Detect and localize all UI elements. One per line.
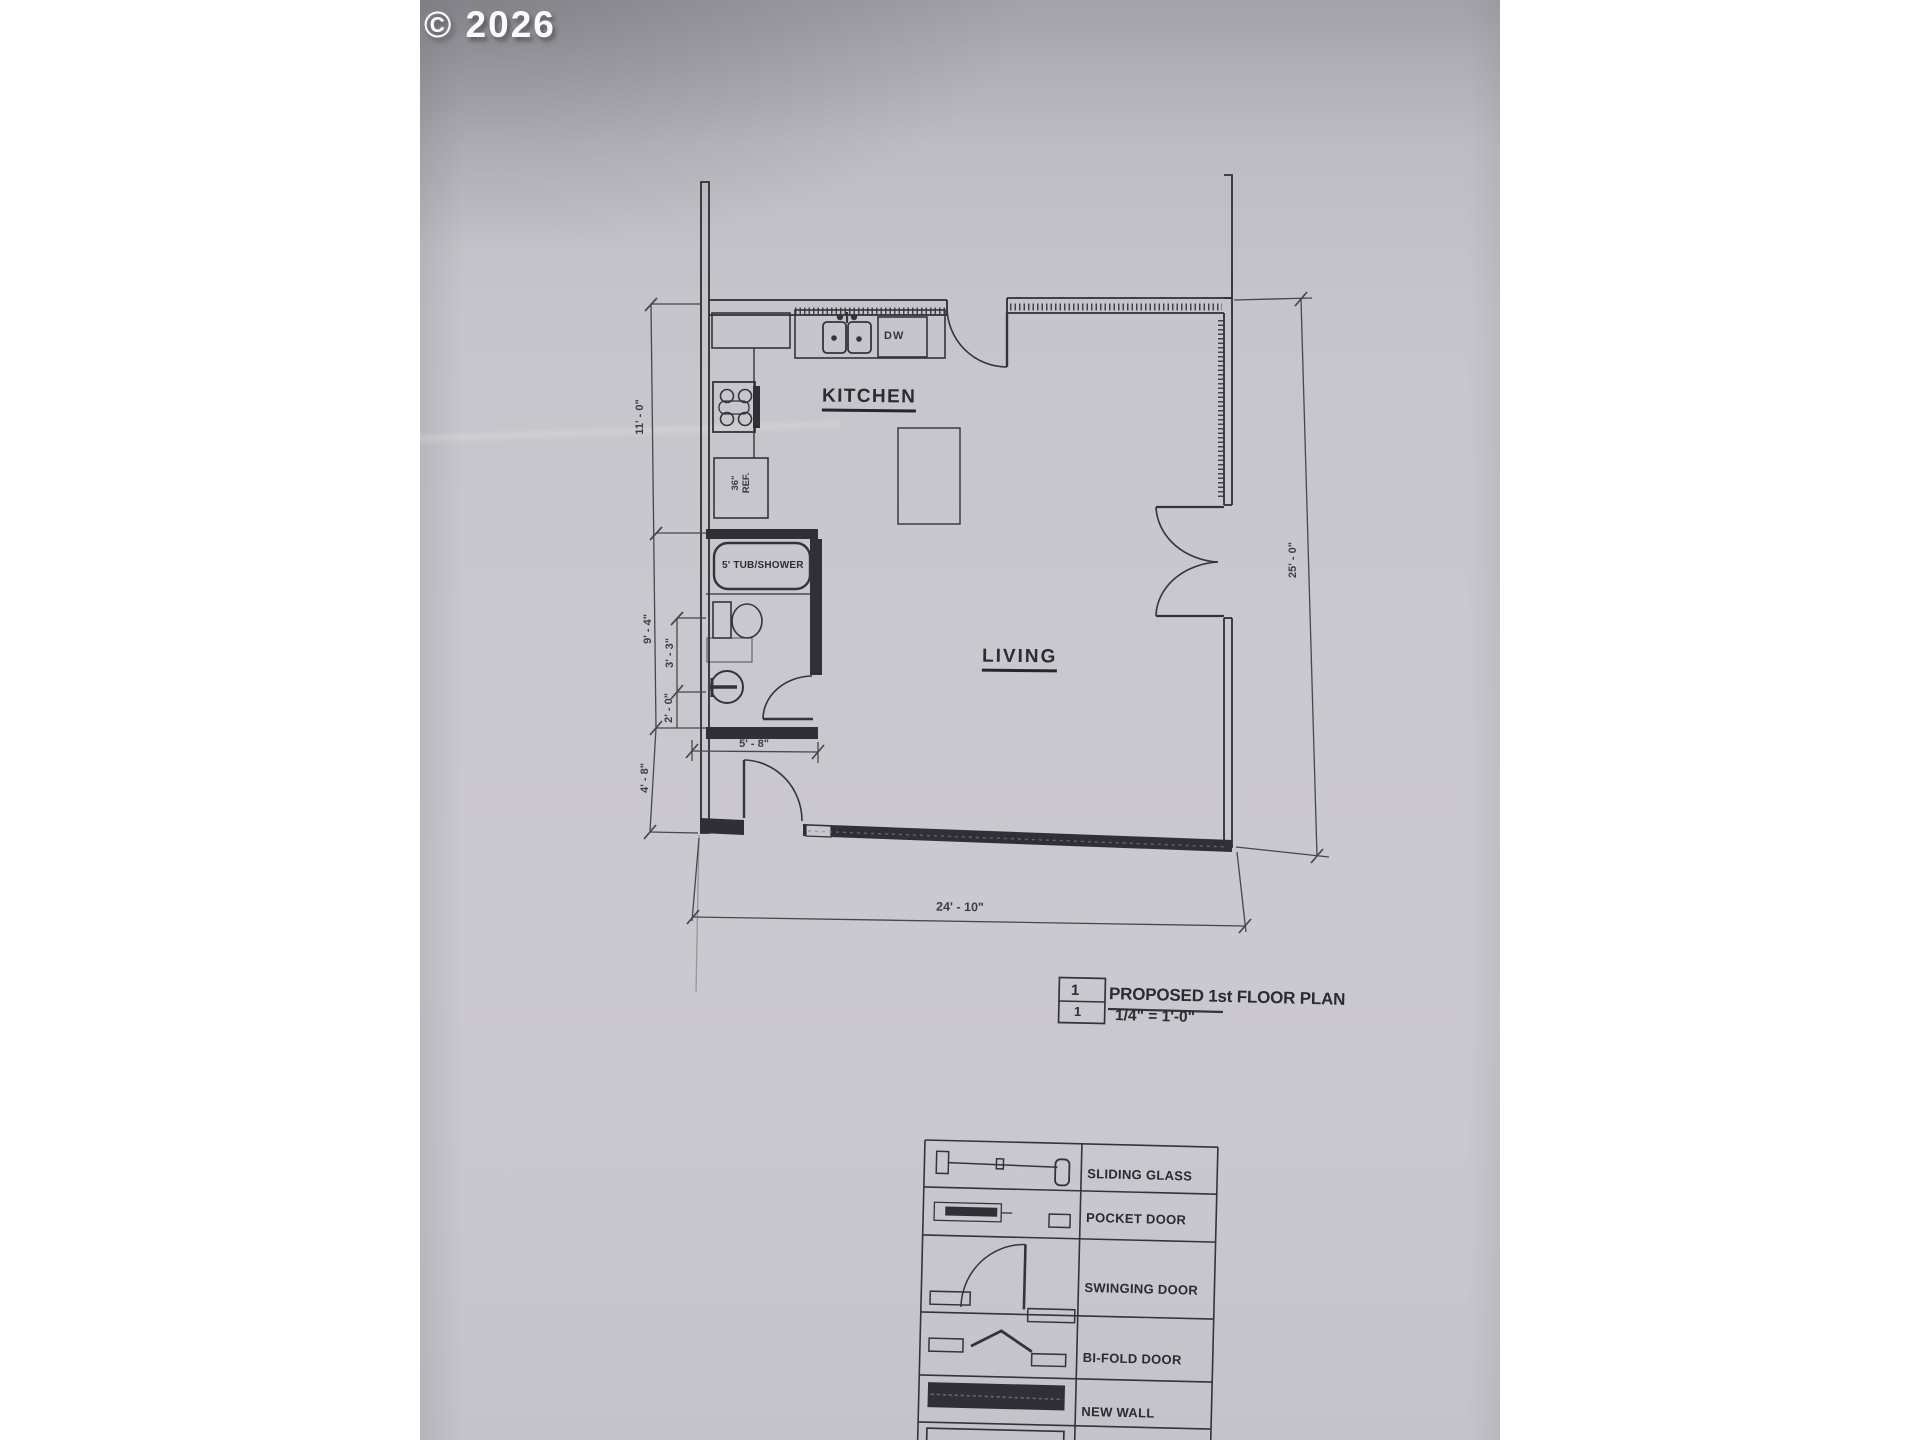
screenshot: © 2026 KITCHEN LIVING DW 36" REF. 5' TUB…: [0, 0, 1920, 1440]
legend-label-pocket-door: POCKET DOOR: [1086, 1210, 1186, 1227]
refrigerator-text: REF.: [741, 473, 752, 494]
dim-bath-height: 9' - 4": [642, 589, 654, 669]
dim-overall-width: 24' - 10": [905, 899, 1015, 915]
copyright-watermark: © 2026: [424, 4, 556, 46]
dishwasher-label: DW: [884, 330, 904, 342]
room-label-living: LIVING: [982, 646, 1058, 673]
refrigerator-size: 36": [730, 475, 741, 490]
legend-labels: SLIDING GLASS POCKET DOOR SWINGING DOOR …: [917, 1140, 1225, 1440]
toilet-bowl: [732, 604, 762, 638]
legend-label-swinging-door: SWINGING DOOR: [1084, 1280, 1198, 1298]
dim-kitchen-height: 11' - 0": [634, 377, 646, 457]
dim-bath-sub-lower: 2' - 0": [663, 668, 675, 748]
refrigerator-label: 36" REF.: [730, 447, 752, 519]
legend-label-new-wall: NEW WALL: [1081, 1404, 1155, 1421]
tub-label: 5' TUB/SHOWER: [722, 560, 804, 571]
toilet-tank: [713, 602, 731, 638]
legend-label-sliding-glass: SLIDING GLASS: [1087, 1166, 1192, 1184]
room-label-kitchen: KITCHEN: [822, 386, 917, 413]
new-walls: [700, 529, 1232, 852]
dim-entry-height: 4' - 8": [639, 738, 651, 818]
legend-label-bi-fold-door: BI-FOLD DOOR: [1083, 1350, 1182, 1367]
title-block-sheet-number: 1: [1074, 1004, 1082, 1019]
title-block-scale: 1/4" = 1'-0": [1115, 1007, 1195, 1027]
kitchen-island: [898, 428, 960, 524]
title-block-detail-number: 1: [1071, 982, 1080, 999]
dim-overall-height: 25' - 0": [1287, 520, 1299, 600]
dim-bath-width: 5' - 8": [714, 738, 794, 750]
